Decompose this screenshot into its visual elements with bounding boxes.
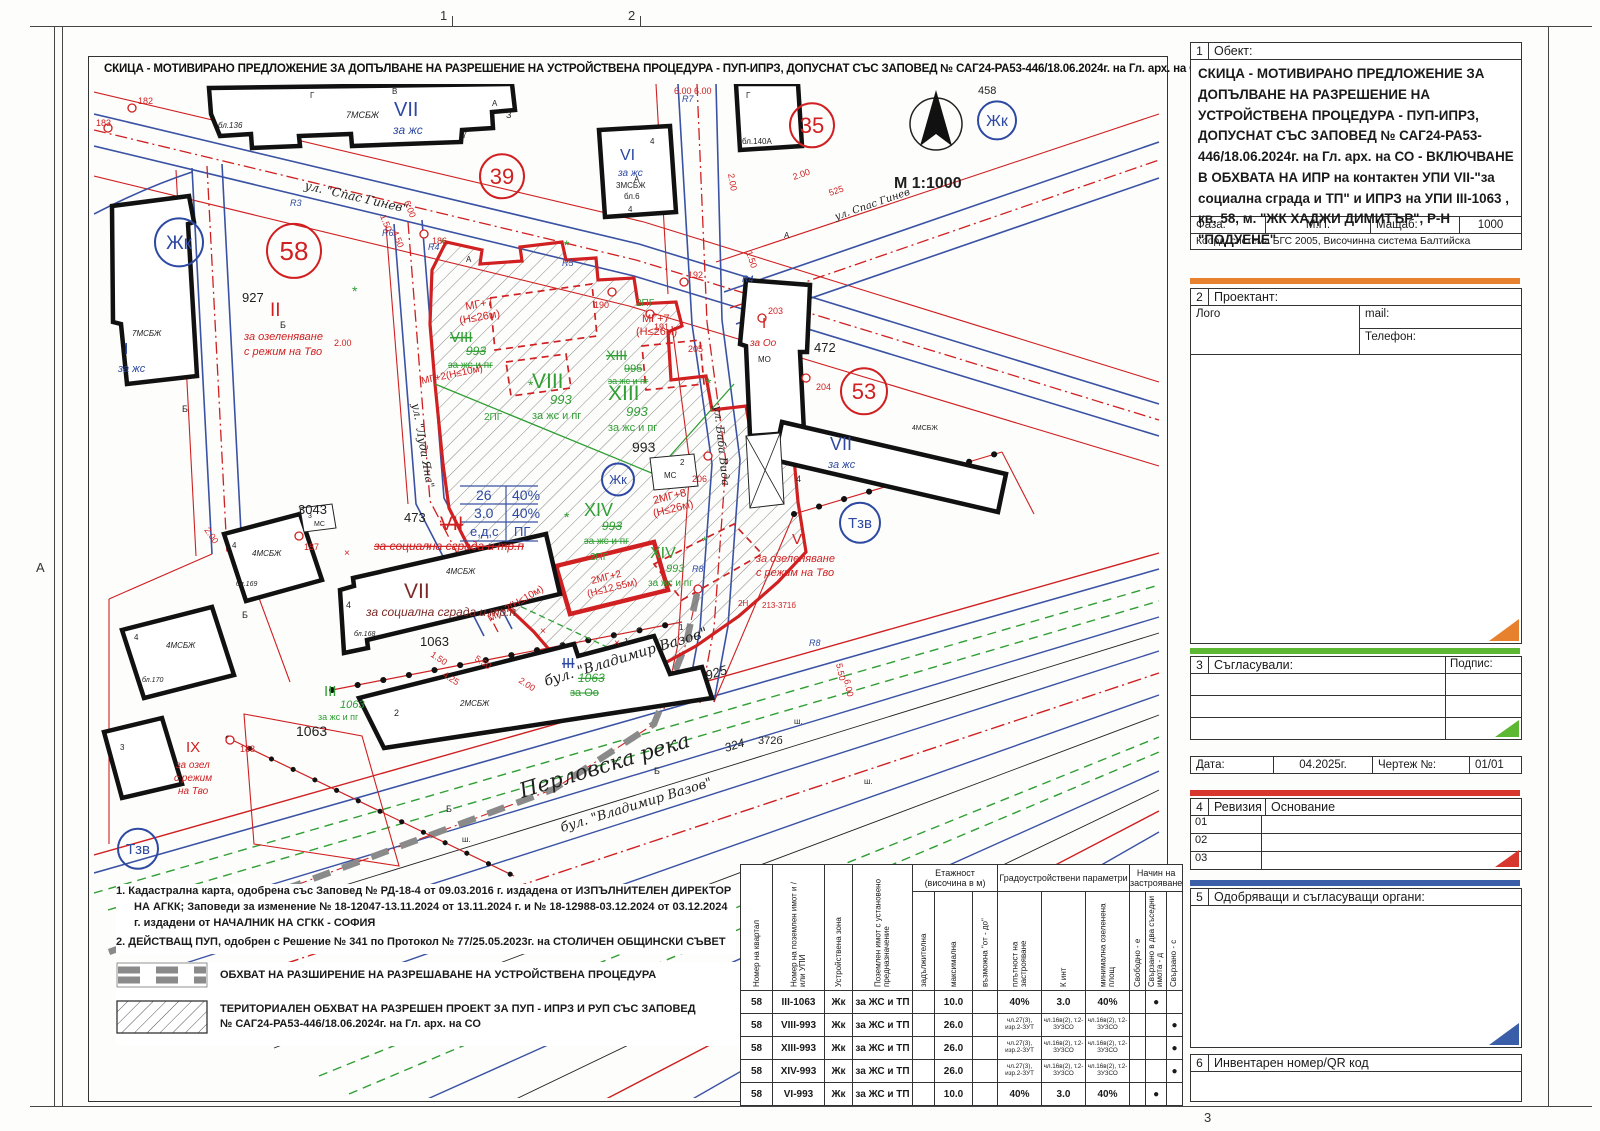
map-label: 4	[232, 541, 237, 550]
map-label: 2.00	[726, 173, 739, 192]
map-label: 2.00	[334, 338, 352, 348]
section-number: 3	[1191, 657, 1209, 673]
map-label: 40%	[512, 505, 540, 521]
map-label: 993	[466, 344, 486, 358]
section-number: 1	[1191, 43, 1209, 59]
map-label: за жс и пг	[532, 410, 581, 422]
map-label: 458	[978, 85, 996, 97]
map-label: 995	[624, 363, 642, 375]
sheet-border-left-inner	[62, 26, 63, 1106]
basis-label: Основание	[1266, 799, 1521, 815]
map-label: III	[562, 655, 575, 672]
table-cell: VI-993	[773, 1083, 825, 1106]
table-cell	[913, 1037, 935, 1060]
table-cell: чл.16в(2), т.2-ЗУЗСО	[1042, 1037, 1086, 1060]
map-label: З	[506, 110, 511, 120]
table-header-cell: Поземлен имот с установено предназначени…	[853, 865, 913, 991]
phase-label: Фаза:	[1191, 217, 1266, 233]
map-label: R4	[428, 242, 440, 252]
map-label: за жс и пг	[608, 422, 657, 434]
map-label: Жк	[986, 113, 1009, 130]
table-cell: 10.0	[935, 1083, 973, 1106]
building-partial	[104, 718, 182, 798]
green-divider	[1190, 648, 1520, 654]
table-cell: Жк	[825, 1014, 853, 1037]
map-label: 372б	[758, 735, 783, 747]
date-row: Дата: 04.2025г. Чертеж №: 01/01	[1190, 756, 1522, 774]
table-cell	[973, 1083, 998, 1106]
map-label: R5	[562, 258, 574, 268]
table-cell: 40%	[1086, 991, 1130, 1014]
map-label: 187	[304, 542, 319, 552]
map-label: за жс	[827, 459, 856, 471]
map-label: за озеленяване	[243, 331, 323, 343]
map-label: 993	[602, 519, 622, 533]
table-header-cell: минимална озеленена площ	[1086, 892, 1130, 991]
table-row: 58XIV-993Жкза ЖС и ТП26.0чл.27(3), изр.2…	[741, 1060, 1183, 1083]
table-header-cell: Свързано в два съседни имота - д	[1146, 892, 1166, 991]
map-label: 2ПГ	[590, 552, 609, 563]
map-label: 6.00	[842, 678, 855, 697]
map-label: R8	[692, 564, 704, 574]
table-cell: за ЖС и ТП	[853, 1014, 913, 1037]
section-label: Обект:	[1209, 43, 1521, 59]
map-label: за жс и пг	[318, 712, 359, 722]
map-label: VI	[792, 531, 806, 548]
sheet-border-bottom	[30, 1106, 1592, 1107]
map-label: 40%	[512, 487, 540, 503]
blue-divider	[1190, 880, 1520, 886]
note-1: 1. Кадастрална карта, одобрена със Запов…	[116, 884, 736, 932]
map-title: СКИЦА - МОТИВИРАНО ПРЕДЛОЖЕНИЕ ЗА ДОПЪЛВ…	[104, 62, 1156, 75]
map-label: 190	[594, 300, 609, 310]
map-label: 7	[462, 130, 467, 140]
map-label: за социална сграда и тр.п	[373, 539, 524, 553]
map-label: 203	[768, 306, 783, 316]
table-header-cell: Свободно - е	[1130, 892, 1146, 991]
table-cell: 3.0	[1042, 1083, 1086, 1106]
table-cell: 40%	[1086, 1083, 1130, 1106]
map-label: ПГ	[514, 524, 530, 539]
section-label: Проектант:	[1209, 289, 1521, 305]
building-vii-zhs	[774, 422, 1006, 512]
table-cell: VIII-993	[773, 1014, 825, 1037]
map-label: 4МСБЖ	[912, 425, 938, 432]
table-cell: ●	[1146, 1083, 1166, 1106]
table-header-cell: възможна "от - до"	[973, 892, 998, 991]
table-header-cell: Номер на квартал	[741, 865, 773, 991]
map-label: В	[392, 87, 397, 96]
map-label: 4МСБЖ	[446, 567, 476, 576]
table-cell: 58	[741, 1014, 773, 1037]
map-label: *	[564, 509, 570, 525]
section-inventory: 6 Инвентарен номер/QR код	[1190, 1054, 1522, 1102]
approval-row	[1191, 695, 1521, 717]
table-cell: чл.27(3), изр.2-ЗУТ	[998, 1060, 1042, 1083]
table-cell: 40%	[998, 1083, 1042, 1106]
map-label: Б	[280, 320, 286, 330]
building-bl170	[122, 607, 234, 698]
map-label: 2	[394, 708, 399, 718]
table-group-header: Градоустройствени параметри	[998, 865, 1130, 892]
section-number: 5	[1191, 889, 1209, 905]
scanned-plan-sheet: 1 2A 3 СКИЦА - МОТИВИРАНО ПРЕДЛОЖЕНИЕ ЗА…	[0, 0, 1600, 1131]
map-label: *	[706, 375, 712, 391]
map-label: за жс и пг	[584, 536, 629, 547]
map-label: 4	[650, 137, 655, 146]
map-label: А	[784, 231, 790, 240]
map-label: бл.136	[218, 121, 243, 130]
map-label: с режим на Тво	[756, 567, 834, 579]
map-label: XIII	[606, 347, 627, 363]
table-cell: ●	[1166, 1037, 1182, 1060]
table-row: 58XIII-993Жкза ЖС и ТП26.0чл.27(3), изр.…	[741, 1037, 1183, 1060]
table-cell: 26.0	[935, 1014, 973, 1037]
revision-row: 03	[1191, 851, 1521, 869]
drawing-number-value: 01/01	[1470, 757, 1521, 773]
map-label: 39	[490, 164, 514, 189]
approval-row	[1191, 717, 1521, 739]
table-header-cell: Свързано - с	[1166, 892, 1182, 991]
map-label: I	[124, 341, 128, 358]
table-cell: ●	[1166, 1014, 1182, 1037]
table-cell	[1146, 1014, 1166, 1037]
map-label: 2ПГ	[484, 412, 503, 423]
map-label: ш.	[794, 717, 803, 726]
table-cell: 58	[741, 1037, 773, 1060]
map-label: е,д,с	[470, 524, 499, 539]
map-label: R6	[382, 228, 394, 238]
fold-mark-label: 3	[1204, 1110, 1211, 1125]
table-cell	[913, 1083, 935, 1106]
table-cell: чл.27(3), изр.2-ЗУТ	[998, 1014, 1042, 1037]
map-label: за социална сграда и тр.п	[365, 605, 516, 619]
table-cell: за ЖС и ТП	[853, 1060, 913, 1083]
map-label: 188	[240, 744, 255, 754]
table-cell: Жк	[825, 1083, 853, 1106]
table-cell: чл.27(3), изр.2-ЗУТ	[998, 1037, 1042, 1060]
table-cell	[1130, 1060, 1146, 1083]
map-label: 1063	[420, 634, 449, 649]
map-label: *	[702, 533, 708, 549]
revision-row: 01	[1191, 815, 1521, 833]
map-label: 7МСБЖ	[346, 110, 380, 120]
date-label: Дата:	[1191, 757, 1274, 773]
table-cell	[1130, 1037, 1146, 1060]
map-label: 7МСБЖ	[132, 329, 162, 338]
table-cell: Жк	[825, 1060, 853, 1083]
table-cell: чл.16в(2), т.2-ЗУЗСО	[1086, 1060, 1130, 1083]
table-group-header: Начин на застрояване	[1130, 865, 1183, 892]
orange-divider	[1190, 278, 1520, 284]
map-label: ×	[344, 548, 350, 559]
table-cell: 3.0	[1042, 991, 1086, 1014]
map-label: VI	[620, 147, 635, 164]
map-label: 993	[632, 439, 656, 455]
table-cell	[1146, 1037, 1166, 1060]
revision-number: 01	[1191, 816, 1262, 833]
table-row: 58VIII-993Жкза ЖС и ТП26.0чл.27(3), изр.…	[741, 1014, 1183, 1037]
map-label: за жс и пг	[648, 578, 693, 589]
map-notes: 1. Кадастрална карта, одобрена със Запов…	[116, 884, 736, 954]
section-object: 1 Обект: СКИЦА - МОТИВИРАНО ПРЕДЛОЖЕНИЕ …	[1190, 42, 1522, 250]
phone-field: Телефон:	[1360, 329, 1521, 351]
table-cell	[973, 1014, 998, 1037]
map-legend: ОБХВАТ НА РАЗШИРЕНИЕ НА РАЗРЕШАВАНЕ НА У…	[116, 962, 742, 1046]
map-label: 927	[242, 290, 264, 305]
map-label: бл.170	[142, 676, 163, 684]
map-label: 2.00	[202, 525, 220, 545]
table-cell: 58	[741, 991, 773, 1014]
map-label: 1063	[340, 699, 365, 711]
map-label: за Оо	[749, 338, 777, 349]
map-label: 3	[120, 743, 125, 752]
map-label: Б	[446, 804, 452, 814]
table-cell	[1166, 991, 1182, 1014]
section-number: 6	[1191, 1055, 1209, 1071]
map-label: VII	[404, 580, 430, 603]
section-number: 4	[1191, 799, 1209, 815]
map-label: 1063	[296, 723, 327, 739]
table-cell	[913, 1060, 935, 1083]
fold-tick	[640, 16, 641, 27]
map-label: бл.168	[354, 630, 375, 638]
table-cell: чл.16в(2), т.2-ЗУЗСО	[1086, 1037, 1130, 1060]
section-revisions: 4 Ревизия Основание 01 02 03	[1190, 798, 1522, 870]
map-label: 472	[814, 340, 836, 355]
map-label: *	[564, 237, 570, 253]
table-cell: Жк	[825, 1037, 853, 1060]
map-label: на Тво	[178, 786, 209, 797]
map-label: XIV	[650, 545, 676, 562]
table-cell: за ЖС и ТП	[853, 991, 913, 1014]
red-divider	[1190, 790, 1520, 796]
table-cell: XIV-993	[773, 1060, 825, 1083]
map-label: Г	[746, 91, 751, 100]
map-label: *	[352, 283, 358, 299]
map-label: ш.	[462, 835, 471, 844]
red-corner-icon	[1495, 850, 1519, 867]
map-label: R3	[290, 198, 302, 208]
map-label: за жс	[117, 363, 146, 375]
map-label: 2	[680, 458, 685, 467]
map-label: А	[492, 99, 498, 108]
map-label: МС	[664, 471, 677, 480]
map-label: 4	[796, 474, 801, 484]
table-cell	[1130, 1083, 1146, 1106]
table-header-cell: Номер на поземлен имот и / или УПИ	[773, 865, 825, 991]
table-cell: Жк	[825, 991, 853, 1014]
table-header-cell: задължителна	[913, 892, 935, 991]
map-label: Б	[654, 766, 660, 776]
map-label: 205	[688, 344, 703, 354]
map-label: VII	[394, 99, 418, 121]
note-2: 2. ДЕЙСТВАЩ ПУП, одобрен с Решение № 341…	[116, 935, 736, 951]
map-label: с режим	[174, 773, 212, 784]
fold-tick	[452, 16, 453, 27]
table-cell	[913, 991, 935, 1014]
table-cell: чл.16в(2), т.2-ЗУЗСО	[1086, 1014, 1130, 1037]
table-cell	[973, 991, 998, 1014]
map-label: за озел	[175, 760, 210, 771]
map-label: бл.169	[236, 580, 257, 588]
map-label: за жс и пг	[608, 376, 649, 386]
table-cell: чл.16в(2), т.2-ЗУЗСО	[1042, 1060, 1086, 1083]
map-label: VIII	[532, 370, 564, 393]
table-cell: ●	[1146, 991, 1166, 1014]
map-label: 4	[628, 205, 633, 214]
table-header-cell: плътност на застрояване	[998, 892, 1042, 991]
map-label: 2МСБЖ	[459, 699, 490, 708]
map-label: Б	[182, 404, 188, 414]
map-label: ул. "Спас Гинев"	[302, 178, 409, 216]
orange-corner-icon	[1489, 619, 1519, 641]
table-header-cell: Устройствена зона	[825, 865, 853, 991]
map-label: 925	[703, 662, 729, 683]
map-label: XIV	[584, 500, 613, 520]
map-label: за озеленяване	[755, 553, 835, 565]
map-label: R7	[682, 94, 694, 104]
table-cell	[1146, 1060, 1166, 1083]
map-label: А	[634, 175, 640, 184]
map-label: 26	[476, 487, 492, 503]
revision-row: 02	[1191, 833, 1521, 851]
table-header-cell: К инт	[1042, 892, 1086, 991]
table-cell	[973, 1037, 998, 1060]
map-label: *	[528, 377, 534, 393]
map-label: III	[324, 683, 337, 700]
table-cell: за ЖС и ТП	[853, 1083, 913, 1106]
scale-value: 1000	[1460, 217, 1521, 233]
drawing-number-label: Чертеж №:	[1373, 757, 1470, 773]
sheet-border-right	[1548, 26, 1549, 1106]
map-label: 3043	[298, 502, 327, 517]
map-label: за жс	[392, 123, 423, 137]
map-label: бл.6	[624, 192, 640, 201]
map-label: IX	[186, 739, 200, 756]
table-cell	[913, 1014, 935, 1037]
map-label: 4	[346, 600, 351, 610]
mail-field: mail:	[1360, 306, 1521, 329]
map-label: А	[466, 255, 472, 264]
hatch-swatch-icon	[116, 1000, 208, 1034]
revision-number: 03	[1191, 852, 1262, 869]
revision-number: 02	[1191, 834, 1262, 851]
green-corner-icon	[1495, 720, 1519, 737]
map-label: 1	[624, 637, 629, 646]
table-cell: 26.0	[935, 1060, 973, 1083]
table-cell: чл.16в(2), т.2-ЗУЗСО	[1042, 1014, 1086, 1037]
map-label: 2.00	[791, 167, 811, 182]
table-cell: XIII-993	[773, 1037, 825, 1060]
table-cell: 58	[741, 1083, 773, 1106]
table-cell: III-1063	[773, 991, 825, 1014]
table-cell	[1166, 1083, 1182, 1106]
map-label: Б	[242, 610, 248, 620]
section-designer: 2 Проектант: Лого mail: Телефон:	[1190, 288, 1522, 644]
map-label: с режим на Тво	[244, 346, 322, 358]
map-label: Тзв	[848, 515, 872, 532]
map-label: 1.50	[744, 250, 759, 270]
map-label: 525	[827, 184, 844, 198]
table-cell: 10.0	[935, 991, 973, 1014]
map-label: VII	[830, 434, 852, 454]
object-description: СКИЦА - МОТИВИРАНО ПРЕДЛОЖЕНИЕ ЗА ДОПЪЛВ…	[1191, 60, 1521, 216]
map-label: 204	[816, 382, 831, 392]
phase-value: М.П.	[1266, 217, 1371, 233]
map-label: 206	[692, 474, 707, 484]
map-label: 993	[626, 404, 648, 419]
section-number: 2	[1191, 289, 1209, 305]
legend-label: ТЕРИТОРИАЛЕН ОБХВАТ НА РАЗРЕШЕН ПРОЕКТ З…	[220, 1002, 700, 1032]
map-label: 4	[134, 633, 139, 642]
map-label: 1	[679, 623, 684, 632]
map-label: бл.140А	[742, 137, 772, 146]
map-label: VII	[440, 514, 463, 535]
section-label: Инвентарен номер/QR код	[1209, 1055, 1521, 1071]
map-label: Г	[310, 91, 315, 100]
map-label: 1063	[578, 671, 605, 685]
map-label: 2Н	[738, 599, 748, 608]
map-label: R4	[742, 274, 754, 284]
map-label: 182	[138, 96, 153, 106]
table-row: 58III-1063Жкза ЖС и ТП10.040%3.040%●	[741, 991, 1183, 1014]
table-cell: за ЖС и ТП	[853, 1037, 913, 1060]
parameters-table: Номер на кварталНомер на поземлен имот и…	[740, 864, 1183, 1106]
map-label: 4МСБЖ	[166, 641, 196, 650]
extension-boundary-swatch-icon	[116, 962, 208, 988]
map-label: МС	[314, 521, 325, 528]
building-mo	[740, 280, 810, 436]
approval-row	[1191, 673, 1521, 695]
scale-label: Мащаб:	[1371, 217, 1460, 233]
section-authorities: 5 Одобряващи и съгласуващи органи:	[1190, 888, 1522, 1048]
map-label: 183	[96, 118, 111, 128]
section-approvals: 3 Съгласували: Подпис:	[1190, 656, 1522, 740]
map-label: 993	[550, 392, 572, 407]
logo-placeholder: Лого	[1191, 306, 1360, 354]
north-arrow-icon	[910, 90, 962, 150]
fold-mark-label: 2	[628, 8, 635, 23]
table-header-cell: максимална	[935, 892, 973, 991]
map-label: ш.	[864, 777, 873, 786]
revision-label: Ревизия	[1209, 799, 1266, 815]
fold-mark-label: 1	[440, 8, 447, 23]
table-cell: 26.0	[935, 1037, 973, 1060]
map-label: ×	[614, 638, 620, 649]
map-label: 1.50	[429, 649, 449, 667]
table-cell	[1130, 991, 1146, 1014]
legend-label: ОБХВАТ НА РАЗШИРЕНИЕ НА РАЗРЕШАВАНЕ НА У…	[220, 968, 700, 983]
map-label: 4МСБЖ	[252, 549, 282, 558]
map-label: 3МСБЖ	[616, 181, 646, 190]
map-label: R8	[809, 638, 821, 648]
map-label: 213-371б	[762, 601, 796, 610]
map-label: 3.0	[474, 505, 494, 521]
legend-item-scope: ТЕРИТОРИАЛЕН ОБХВАТ НА РАЗРЕШЕН ПРОЕКТ З…	[116, 1000, 742, 1034]
fold-mark-label: A	[36, 560, 45, 575]
legend-item-extension: ОБХВАТ НА РАЗШИРЕНИЕ НА РАЗРЕШАВАНЕ НА У…	[116, 962, 742, 988]
map-label: Тзв	[126, 841, 150, 858]
map-label: Жк	[609, 472, 627, 487]
date-value: 04.2025г.	[1274, 757, 1373, 773]
table-group-header: Етажност (височина в м)	[913, 865, 998, 892]
sheet-border-top	[30, 26, 1592, 27]
blue-corner-icon	[1489, 1023, 1519, 1045]
map-label: 993	[666, 563, 685, 575]
map-label: 473	[404, 510, 426, 525]
map-label: 35	[800, 113, 824, 138]
